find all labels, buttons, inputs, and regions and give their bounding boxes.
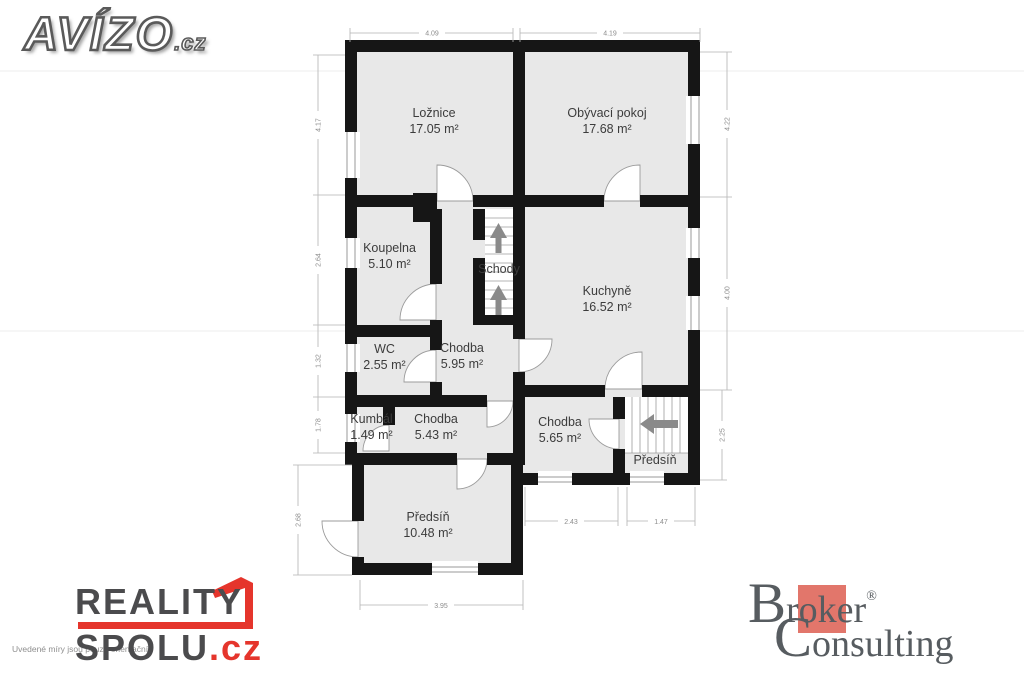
room-label-koupelna: Koupelna 5.10 m² bbox=[332, 240, 447, 272]
broker-consulting-line2: Consulting bbox=[774, 609, 954, 666]
room-label-chodba-565: Chodba 5.65 m² bbox=[501, 414, 619, 446]
avizo-logo-text: AVÍZO bbox=[24, 7, 174, 60]
avizo-logo-tld: .cz bbox=[174, 30, 206, 55]
stairs-predsin bbox=[625, 397, 688, 453]
dim-top-0: 4.09 bbox=[425, 31, 439, 38]
dim-bottom-inner-0: 2.43 bbox=[564, 519, 578, 526]
avizo-logo: AVÍZO.cz bbox=[24, 6, 207, 61]
reality-spolu-logo: REALITY SPOLU.cz bbox=[60, 575, 270, 670]
dim-left-0: 4.17 bbox=[316, 118, 323, 132]
registered-mark: ® bbox=[866, 589, 877, 604]
reality-spolu-line1: REALITY bbox=[75, 581, 243, 623]
room-label-schody: Schody bbox=[469, 261, 529, 277]
room-label-chodba-595: Chodba 5.95 m² bbox=[403, 340, 521, 372]
dim-left-4: 2.68 bbox=[296, 513, 303, 527]
room-label-obyvaci-pokoj: Obývací pokoj 17.68 m² bbox=[537, 105, 677, 137]
dim-bottom-inner-1: 1.47 bbox=[654, 519, 668, 526]
room-label-kuchyne: Kuchyně 16.52 m² bbox=[537, 283, 677, 315]
room-label-loznice: Ložnice 17.05 m² bbox=[364, 105, 504, 137]
reality-spolu-line2: SPOLU.cz bbox=[75, 627, 263, 669]
door-entrance bbox=[322, 521, 358, 557]
room-label-predsin-small: Předsíň bbox=[620, 452, 690, 468]
dim-bottom-0: 3.95 bbox=[434, 603, 448, 610]
dim-right-0: 4.22 bbox=[725, 117, 732, 131]
dim-top-1: 4.19 bbox=[603, 31, 617, 38]
room-label-predsin: Předsíň 10.48 m² bbox=[358, 509, 498, 541]
dim-left-3: 1.78 bbox=[316, 418, 323, 432]
room-label-chodba-543: Chodba 5.43 m² bbox=[377, 411, 495, 443]
broker-consulting-logo: Broker® Consulting bbox=[746, 583, 1021, 679]
reality-spolu-tld: .cz bbox=[209, 627, 263, 668]
dim-left-1: 2.64 bbox=[316, 253, 323, 267]
dim-right-2: 2.25 bbox=[720, 428, 727, 442]
floorplan-page: { "branding": { "avizo": {"name": "AVÍZO… bbox=[0, 0, 1024, 683]
dim-left-2: 1.32 bbox=[316, 354, 323, 368]
dim-right-1: 4.00 bbox=[725, 286, 732, 300]
